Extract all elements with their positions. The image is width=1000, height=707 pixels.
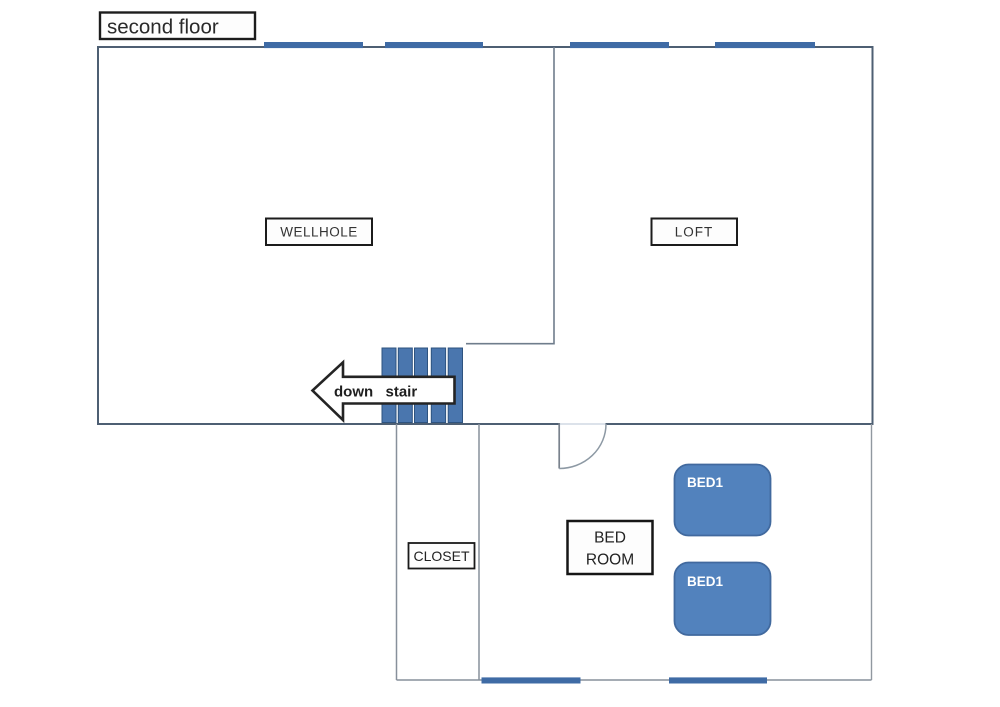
svg-text:CLOSET: CLOSET bbox=[413, 548, 469, 564]
svg-text:BED: BED bbox=[594, 530, 626, 547]
svg-text:BED1: BED1 bbox=[687, 574, 724, 589]
svg-text:WELLHOLE: WELLHOLE bbox=[280, 225, 358, 240]
svg-text:BED1: BED1 bbox=[687, 475, 724, 490]
svg-text:LOFT: LOFT bbox=[675, 225, 714, 240]
svg-text:ROOM: ROOM bbox=[586, 552, 634, 569]
svg-text:second floor: second floor bbox=[107, 16, 219, 39]
